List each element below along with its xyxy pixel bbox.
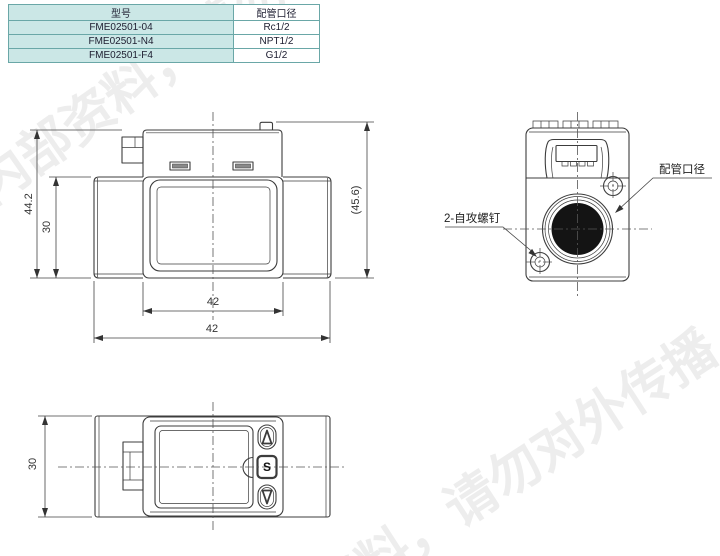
pipe-wing-right [283, 177, 331, 278]
drawing-canvas: 内部资料，请勿对外传播 内部资料，请勿对外传播 型号 配管口径 FME02501… [0, 0, 720, 556]
port-size-label: 配管口径 [659, 164, 705, 176]
bottom-view [38, 402, 346, 531]
dim-label-right-height: (45.6) [350, 178, 362, 222]
vent-slot [170, 162, 190, 170]
housing-outline [143, 130, 282, 177]
engineering-drawing [0, 0, 720, 556]
dim-label-body-height: 30 [41, 205, 53, 249]
self-tapping-screws-label: 2-自攻螺钉 [444, 213, 500, 225]
dim-label-display-width: 42 [193, 296, 233, 308]
bottom-screen-bezel [155, 426, 253, 508]
set-button-letter: S [259, 461, 275, 473]
display-screen [157, 187, 270, 264]
connector-plug [545, 140, 609, 179]
dim-body-height [49, 177, 91, 278]
screw-hole [600, 172, 628, 200]
up-arrow-icon [263, 431, 272, 444]
dim-label-overall-width: 42 [192, 323, 232, 335]
dim-label-bottom-height: 30 [27, 442, 39, 486]
top-tabs [533, 121, 618, 128]
dim-label-overall-height: 44.2 [23, 182, 35, 226]
top-tab [260, 122, 273, 130]
vent-slot [233, 162, 253, 170]
down-arrow-icon [263, 491, 272, 504]
cable-connector [122, 137, 143, 163]
leader-screws-label [445, 227, 537, 257]
screen-notch [243, 458, 253, 478]
pipe-wing-left [94, 177, 143, 278]
front-view [30, 112, 374, 343]
down-button [258, 485, 276, 509]
side-view [445, 112, 712, 298]
bottom-cable-connector [123, 442, 143, 490]
up-button [258, 425, 276, 449]
dim-bottom-height [38, 416, 92, 517]
dim-overall-height [30, 130, 122, 278]
display-bezel [150, 180, 277, 271]
